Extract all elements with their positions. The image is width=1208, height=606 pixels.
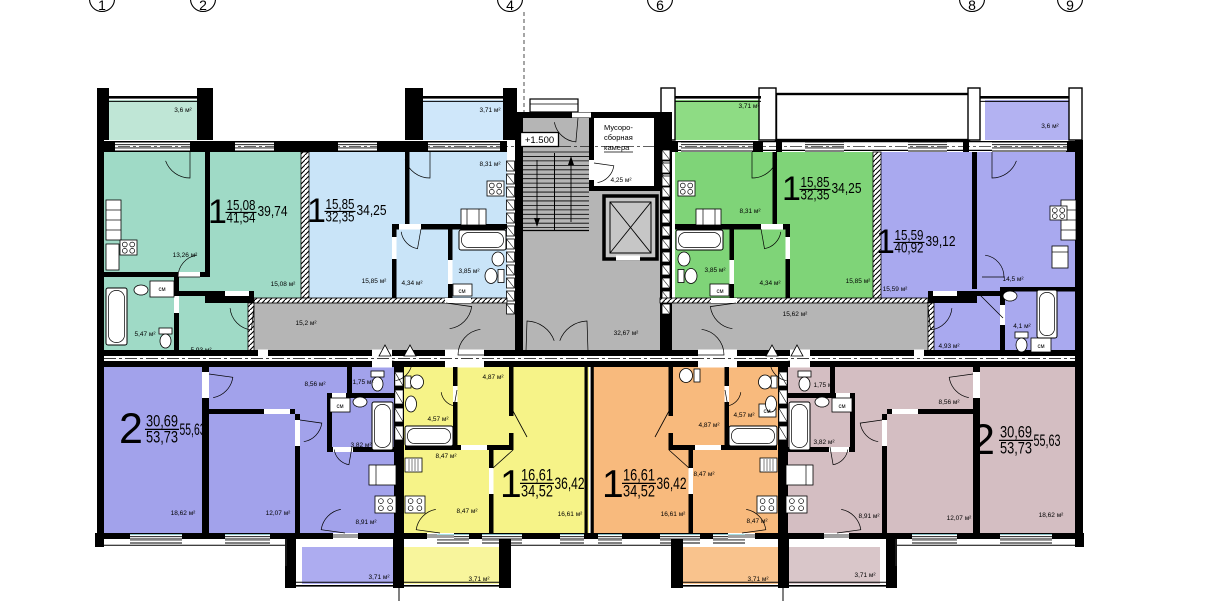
svg-text:15,62 м²: 15,62 м²	[783, 311, 809, 318]
svg-text:55,63: 55,63	[1034, 431, 1061, 450]
svg-text:41,54: 41,54	[227, 211, 256, 227]
svg-text:32,35: 32,35	[326, 210, 355, 226]
svg-text:6: 6	[656, 0, 664, 13]
svg-text:15,59 м²: 15,59 м²	[883, 286, 909, 293]
svg-text:34,25: 34,25	[357, 203, 387, 219]
svg-text:39,12: 39,12	[926, 234, 956, 250]
svg-text:1: 1	[307, 192, 326, 230]
svg-text:4,57 м²: 4,57 м²	[427, 416, 449, 423]
svg-text:1: 1	[782, 170, 801, 208]
svg-text:53,73: 53,73	[1000, 439, 1032, 458]
svg-text:Мусоро-: Мусоро-	[604, 123, 633, 132]
svg-text:1: 1	[876, 223, 895, 261]
svg-text:3,71 м²: 3,71 м²	[747, 576, 769, 583]
svg-text:4,34 м²: 4,34 м²	[401, 280, 423, 287]
svg-text:1: 1	[500, 463, 522, 506]
svg-text:8,47 м²: 8,47 м²	[746, 518, 768, 525]
svg-text:1,75 м²: 1,75 м²	[813, 382, 835, 389]
svg-text:см: см	[336, 404, 343, 410]
svg-text:3,6 м²: 3,6 м²	[174, 107, 192, 114]
svg-text:14,5 м²: 14,5 м²	[1002, 276, 1024, 283]
svg-text:40,92: 40,92	[895, 241, 924, 257]
svg-text:9: 9	[1066, 0, 1074, 13]
svg-text:8,47 м²: 8,47 м²	[456, 508, 478, 515]
svg-text:4,87 м²: 4,87 м²	[698, 422, 720, 429]
svg-text:8,47 м²: 8,47 м²	[435, 453, 457, 460]
svg-text:1: 1	[98, 0, 106, 13]
svg-text:8,47 м²: 8,47 м²	[693, 471, 715, 478]
svg-text:4,57 м²: 4,57 м²	[733, 412, 755, 419]
svg-text:2: 2	[971, 416, 995, 464]
svg-text:4,1 м²: 4,1 м²	[1013, 323, 1031, 330]
svg-text:4,25 м²: 4,25 м²	[610, 177, 632, 184]
svg-text:3,71 м²: 3,71 м²	[368, 574, 390, 581]
svg-text:4,34 м²: 4,34 м²	[759, 280, 781, 287]
svg-text:55,63: 55,63	[180, 420, 206, 439]
svg-text:1: 1	[602, 463, 624, 506]
svg-text:12,07 м²: 12,07 м²	[947, 515, 973, 522]
svg-text:5,47 м²: 5,47 м²	[134, 331, 156, 338]
svg-text:13,26 м²: 13,26 м²	[173, 252, 199, 259]
svg-text:18,62 м²: 18,62 м²	[1039, 512, 1065, 519]
svg-text:32,67 м²: 32,67 м²	[614, 330, 640, 337]
svg-text:3,6 м²: 3,6 м²	[1041, 123, 1059, 130]
svg-text:4,93 м²: 4,93 м²	[938, 343, 960, 350]
svg-text:3,71 м²: 3,71 м²	[468, 576, 490, 583]
svg-text:34,52: 34,52	[623, 482, 655, 501]
svg-text:3,71 м²: 3,71 м²	[479, 107, 501, 114]
svg-text:сборная: сборная	[604, 133, 633, 142]
svg-text:36,42: 36,42	[555, 474, 585, 493]
svg-text:см: см	[458, 289, 465, 295]
svg-text:8: 8	[968, 0, 976, 13]
svg-text:см: см	[158, 287, 165, 293]
svg-text:4,87 м²: 4,87 м²	[482, 374, 504, 381]
svg-text:8,31 м²: 8,31 м²	[739, 208, 761, 215]
svg-text:+1.500: +1.500	[525, 135, 554, 146]
svg-text:15,08 м²: 15,08 м²	[271, 281, 297, 288]
svg-text:8,56 м²: 8,56 м²	[304, 381, 326, 388]
svg-text:53,73: 53,73	[146, 428, 178, 447]
svg-text:39,74: 39,74	[258, 204, 288, 220]
svg-text:1: 1	[208, 193, 227, 231]
svg-text:8,31 м²: 8,31 м²	[479, 161, 501, 168]
svg-text:2: 2	[199, 0, 207, 13]
svg-text:34,25: 34,25	[832, 181, 862, 197]
svg-text:16,61 м²: 16,61 м²	[558, 511, 584, 518]
svg-text:3,85 м²: 3,85 м²	[458, 268, 480, 275]
svg-text:15,85 м²: 15,85 м²	[362, 278, 388, 285]
svg-text:15,85 м²: 15,85 м²	[846, 278, 872, 285]
svg-text:18,62 м²: 18,62 м²	[171, 510, 197, 517]
svg-text:камера: камера	[604, 143, 630, 152]
svg-text:см: см	[763, 409, 770, 415]
svg-text:32,35: 32,35	[801, 188, 830, 204]
svg-text:2: 2	[119, 405, 143, 453]
svg-text:3,82 м²: 3,82 м²	[813, 439, 835, 446]
svg-text:8,56 м²: 8,56 м²	[938, 399, 960, 406]
svg-text:36,42: 36,42	[657, 474, 687, 493]
svg-text:12,07 м²: 12,07 м²	[266, 510, 292, 517]
svg-text:3,71 м²: 3,71 м²	[738, 103, 760, 110]
svg-text:3,82 м²: 3,82 м²	[350, 442, 372, 449]
svg-text:1,75 м²: 1,75 м²	[352, 379, 374, 386]
svg-text:16,61 м²: 16,61 м²	[661, 511, 687, 518]
svg-text:3,85 м²: 3,85 м²	[704, 267, 726, 274]
svg-text:см: см	[1037, 344, 1044, 350]
svg-text:5,93 м²: 5,93 м²	[190, 347, 212, 354]
svg-text:см: см	[838, 404, 845, 410]
svg-text:3,71 м²: 3,71 м²	[854, 572, 876, 579]
svg-text:15,2 м²: 15,2 м²	[295, 320, 317, 327]
svg-text:4: 4	[506, 0, 514, 13]
svg-text:см: см	[716, 289, 723, 295]
svg-text:34,52: 34,52	[521, 482, 553, 501]
svg-text:8,91 м²: 8,91 м²	[355, 519, 377, 526]
svg-text:8,91 м²: 8,91 м²	[858, 513, 880, 520]
